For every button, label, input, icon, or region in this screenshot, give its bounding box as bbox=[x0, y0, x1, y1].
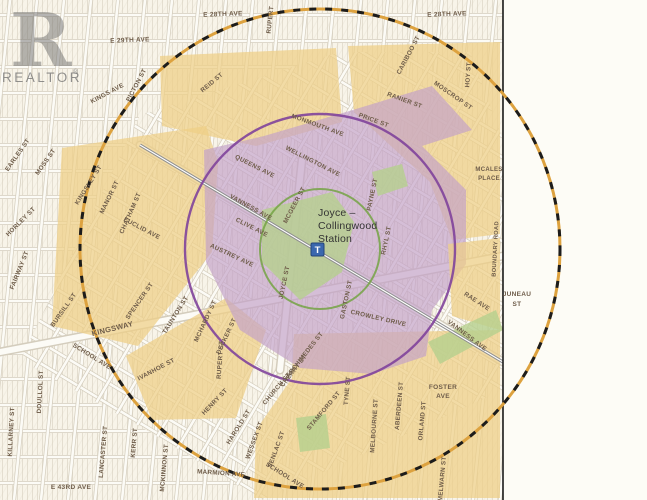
street-label: MCALES bbox=[475, 167, 502, 173]
street-label: E 28TH AVE bbox=[427, 10, 467, 18]
street-label: JUNEAU bbox=[503, 291, 532, 298]
street-label: E 43RD AVE bbox=[51, 484, 92, 491]
realtor-watermark: R REALTOR ® bbox=[2, 0, 82, 85]
station-name-line-2: Collingwood bbox=[318, 220, 377, 232]
street-label: FOSTER bbox=[429, 384, 457, 391]
station-name-line-3: Station bbox=[318, 233, 352, 245]
outside-map-panel bbox=[503, 0, 647, 500]
street-label: E 28TH AVE bbox=[203, 10, 243, 18]
street-label: E 29TH AVE bbox=[110, 36, 150, 44]
station-icon-letter: T bbox=[315, 245, 321, 256]
map-screenshot: T Joyce – Collingwood Station E 29TH AVE… bbox=[0, 0, 647, 500]
registered-trademark-icon: ® bbox=[73, 68, 79, 76]
map-canvas: T Joyce – Collingwood Station E 29TH AVE… bbox=[0, 0, 647, 500]
street-label: ST bbox=[513, 301, 522, 308]
realtor-wordmark: REALTOR bbox=[2, 70, 82, 85]
station-name-line-1: Joyce – bbox=[318, 207, 356, 219]
street-label: PLACE bbox=[478, 176, 500, 182]
street-label: AVE bbox=[436, 393, 450, 400]
